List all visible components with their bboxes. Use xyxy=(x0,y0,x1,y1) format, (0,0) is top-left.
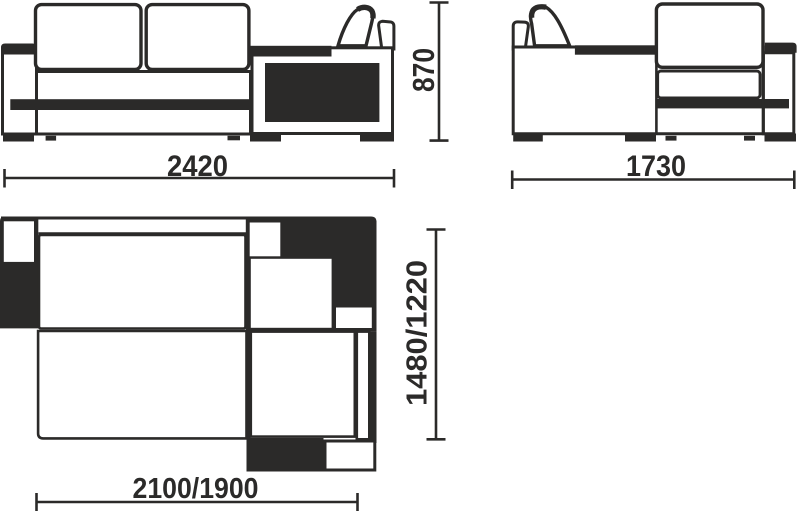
svg-text:1480/1220: 1480/1220 xyxy=(401,260,433,406)
svg-text:2100/1900: 2100/1900 xyxy=(133,473,259,505)
svg-text:2420: 2420 xyxy=(167,150,228,183)
svg-text:870: 870 xyxy=(406,48,441,92)
svg-text:1730: 1730 xyxy=(626,150,686,183)
